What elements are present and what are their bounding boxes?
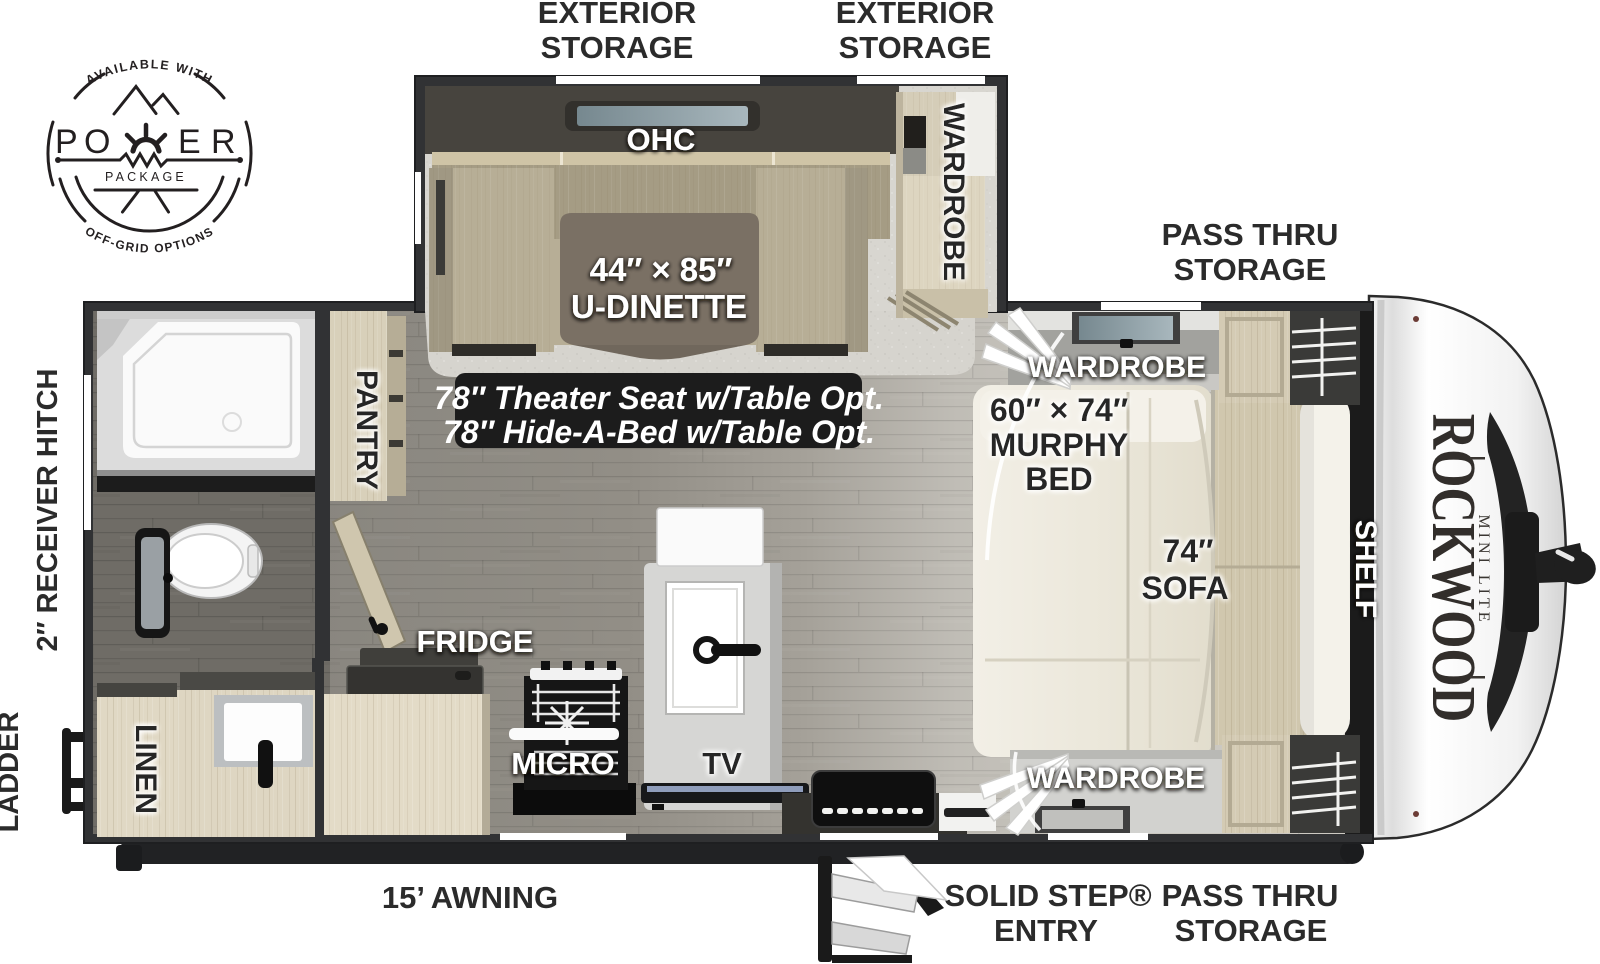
svg-text:78″ Hide-A-Bed w/Table Opt.: 78″ Hide-A-Bed w/Table Opt. [443, 414, 875, 450]
svg-text:15’ AWNING: 15’ AWNING [382, 880, 558, 915]
svg-text:MICRO: MICRO [511, 746, 614, 781]
svg-text:MURPHY: MURPHY [990, 427, 1129, 463]
svg-text:O: O [84, 123, 110, 161]
svg-text:E: E [178, 123, 201, 161]
svg-text:STORAGE: STORAGE [839, 30, 992, 65]
svg-text:78″ Theater Seat w/Table Opt.: 78″ Theater Seat w/Table Opt. [434, 380, 884, 416]
svg-text:PASS THRU: PASS THRU [1162, 878, 1339, 913]
svg-text:BED: BED [1025, 461, 1093, 497]
svg-text:OHC: OHC [627, 122, 696, 157]
svg-text:P: P [55, 123, 78, 161]
svg-text:TV: TV [702, 746, 742, 781]
svg-text:44″ × 85″: 44″ × 85″ [590, 251, 733, 288]
svg-text:STORAGE: STORAGE [1175, 913, 1328, 948]
svg-text:74″: 74″ [1163, 533, 1214, 569]
svg-text:WARDROBE: WARDROBE [1028, 351, 1206, 384]
svg-text:EXTERIOR: EXTERIOR [836, 0, 994, 30]
svg-text:FRIDGE: FRIDGE [416, 624, 533, 659]
svg-text:LINEN: LINEN [129, 724, 162, 814]
svg-text:60″ × 74″: 60″ × 74″ [990, 392, 1128, 428]
svg-text:SOFA: SOFA [1141, 570, 1228, 606]
svg-text:SOLID STEP®: SOLID STEP® [944, 878, 1151, 913]
svg-text:PASS THRU: PASS THRU [1162, 217, 1339, 252]
svg-text:SHELF: SHELF [1349, 520, 1382, 618]
svg-text:ENTRY: ENTRY [994, 913, 1098, 948]
svg-text:STORAGE: STORAGE [1174, 252, 1327, 287]
svg-text:EXTERIOR: EXTERIOR [538, 0, 696, 30]
svg-text:PANTRY: PANTRY [350, 370, 383, 490]
svg-text:WARDROBE: WARDROBE [1027, 762, 1205, 795]
svg-text:2″ RECEIVER HITCH: 2″ RECEIVER HITCH [32, 369, 64, 652]
svg-text:U-DINETTE: U-DINETTE [571, 288, 747, 325]
svg-text:WARDROBE: WARDROBE [937, 103, 970, 281]
svg-text:MINI LITE: MINI LITE [1475, 514, 1492, 625]
svg-text:PACKAGE: PACKAGE [105, 170, 187, 184]
svg-text:STORAGE: STORAGE [541, 30, 694, 65]
svg-text:LADDER: LADDER [0, 712, 25, 833]
svg-text:R: R [211, 123, 236, 161]
